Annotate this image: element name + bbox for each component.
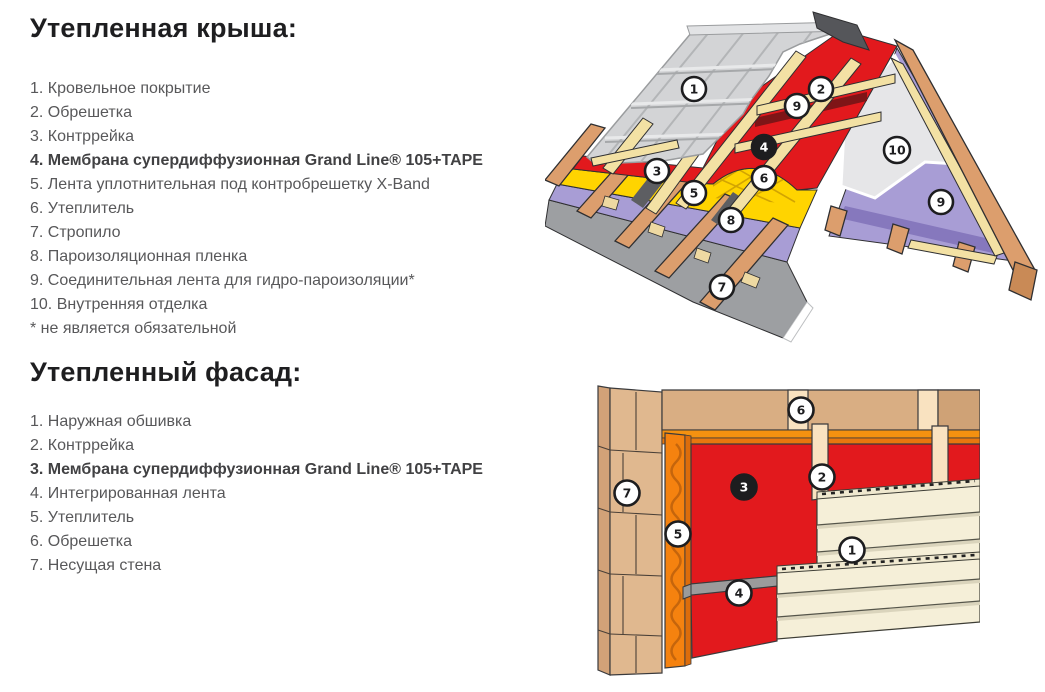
svg-text:10: 10 [888,143,906,158]
svg-text:3: 3 [740,480,749,495]
svg-text:2: 2 [818,470,827,485]
facade-list-item-membrane: 3. Мембрана супердиффузионная Grand Line… [30,458,483,482]
roof-marker-5: 5 [682,181,706,205]
roof-marker-6: 6 [752,166,776,190]
facade-marker-3: 3 [732,475,757,500]
roof-list-item: 2. Обрешетка [30,101,483,125]
roof-section-heading: Утепленная крыша: [30,13,297,44]
roof-list-item: 10. Внутренняя отделка [30,293,483,317]
facade-list-item: 7. Несущая стена [30,554,483,578]
svg-text:3: 3 [653,164,662,179]
roof-list-item: 5. Лента уплотнительная под контробрешет… [30,173,483,197]
svg-text:6: 6 [797,403,806,418]
wall-top-band-shaded [938,390,980,430]
roof-list-item: 3. Контррейка [30,125,483,149]
facade-marker-2: 2 [810,465,835,490]
roof-marker-3: 3 [645,159,669,183]
facade-section-heading: Утепленный фасад: [30,357,301,388]
roof-marker-4: 4 [752,135,776,159]
roof-list-item: 6. Утеплитель [30,197,483,221]
roof-marker-2: 2 [809,77,833,101]
roof-diagram-illustration: 1 2 9 4 3 5 6 8 7 10 9 [545,0,1045,345]
svg-text:5: 5 [690,186,699,201]
facade-list-item: 5. Утеплитель [30,506,483,530]
svg-text:7: 7 [718,280,727,295]
facade-list-item: 1. Наружная обшивка [30,410,483,434]
svg-text:7: 7 [623,486,632,501]
svg-text:9: 9 [937,195,946,210]
svg-text:1: 1 [690,82,699,97]
facade-list-item: 4. Интегрированная лента [30,482,483,506]
svg-text:4: 4 [760,140,769,155]
roof-list-item: 8. Пароизоляционная пленка [30,245,483,269]
roof-list-item: 1. Кровельное покрытие [30,77,483,101]
page: Утепленная крыша: 1. Кровельное покрытие… [0,0,1045,692]
svg-text:2: 2 [817,82,826,97]
stud [918,390,938,430]
counter-batten-front [932,426,948,490]
facade-marker-4: 4 [727,581,752,606]
facade-marker-7: 7 [615,481,640,506]
roof-list-item: 7. Стропило [30,221,483,245]
svg-text:6: 6 [760,171,769,186]
roof-list-footnote: * не является обязательной [30,317,483,341]
roof-marker-10: 10 [884,137,910,163]
svg-text:8: 8 [727,213,736,228]
facade-layer-list: 1. Наружная обшивка 2. Контррейка 3. Мем… [30,410,483,578]
facade-list-item: 6. Обрешетка [30,530,483,554]
roof-marker-7: 7 [710,275,734,299]
svg-text:4: 4 [735,586,744,601]
insulation-edge [685,435,691,666]
facade-marker-5: 5 [666,522,691,547]
facade-marker-1: 1 [840,538,865,563]
roof-marker-9b: 9 [929,190,953,214]
facade-diagram-illustration: 6 2 7 3 5 1 4 [590,380,980,680]
facade-marker-6: 6 [789,398,814,423]
roof-marker-1: 1 [682,77,706,101]
svg-text:5: 5 [674,527,683,542]
roof-layer-list: 1. Кровельное покрытие 2. Обрешетка 3. К… [30,77,483,341]
svg-text:1: 1 [848,543,857,558]
roof-list-item: 9. Соединительная лента для гидро-пароиз… [30,269,483,293]
facade-list-item: 2. Контррейка [30,434,483,458]
roof-marker-8: 8 [719,208,743,232]
roof-marker-9: 9 [785,94,809,118]
roof-list-item-membrane: 4. Мембрана супердиффузионная Grand Line… [30,149,483,173]
svg-text:9: 9 [793,99,802,114]
